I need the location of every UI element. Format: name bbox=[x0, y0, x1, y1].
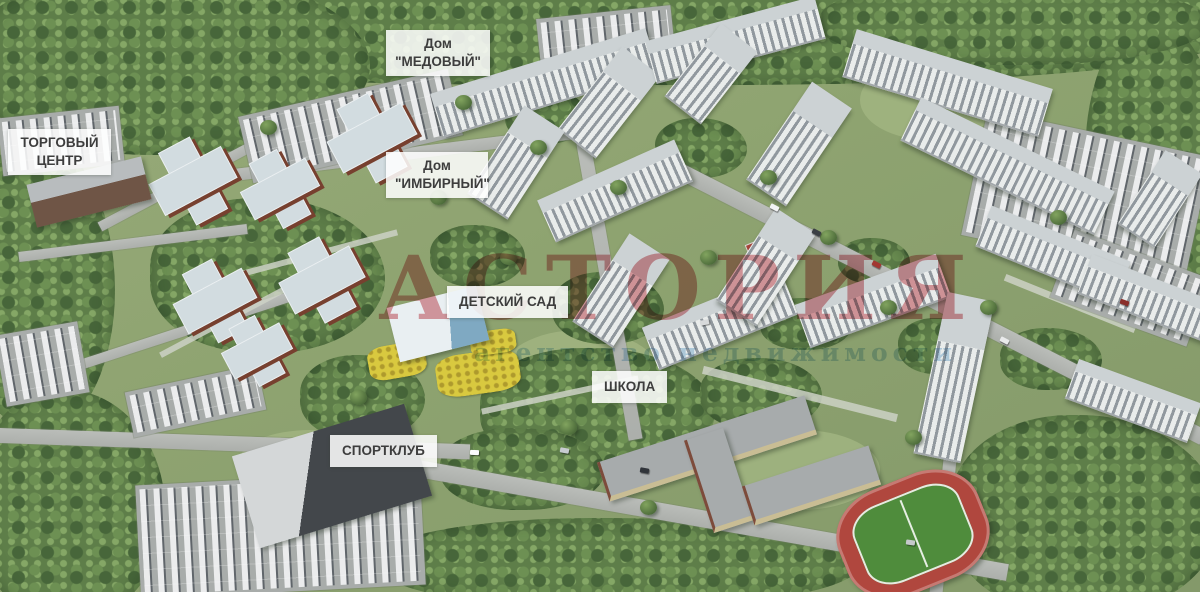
parking-lot bbox=[0, 321, 90, 406]
label-kindergarten[interactable]: ДЕТСКИЙ САД bbox=[447, 286, 568, 318]
tree bbox=[1050, 210, 1067, 225]
label-house-imbirny[interactable]: Дом "ИМБИРНЫЙ" bbox=[386, 152, 488, 198]
label-line: "МЕДОВЫЙ" bbox=[395, 53, 481, 71]
label-house-medovy[interactable]: Дом "МЕДОВЫЙ" bbox=[386, 30, 490, 76]
tree bbox=[530, 140, 547, 155]
tree bbox=[260, 120, 277, 135]
tree bbox=[980, 300, 997, 315]
tree bbox=[640, 500, 657, 515]
apartment-slab bbox=[746, 82, 852, 207]
label-line: ТОРГОВЫЙ bbox=[17, 134, 102, 152]
tree bbox=[455, 95, 472, 110]
masterplan-aerial-view: АСТОРИЯ агентство недвижимости ТОРГОВЫЙ … bbox=[0, 0, 1200, 592]
agency-watermark-subtitle: агентство недвижимости bbox=[474, 338, 944, 367]
tree bbox=[905, 430, 922, 445]
car bbox=[470, 450, 479, 455]
label-line: Дом bbox=[395, 35, 481, 53]
label-line: Дом bbox=[395, 157, 479, 175]
field-halfway-line bbox=[899, 500, 928, 568]
label-line: ЦЕНТР bbox=[17, 152, 102, 170]
football-field bbox=[845, 475, 981, 592]
label-line: "ИМБИРНЫЙ" bbox=[395, 175, 479, 193]
tree bbox=[760, 170, 777, 185]
label-shopping-center[interactable]: ТОРГОВЫЙ ЦЕНТР bbox=[8, 129, 111, 175]
tree bbox=[350, 390, 367, 405]
label-school[interactable]: ШКОЛА bbox=[592, 371, 667, 403]
car bbox=[906, 539, 916, 545]
label-sport-club[interactable]: СПОРТКЛУБ bbox=[330, 435, 437, 467]
tree bbox=[560, 420, 577, 435]
tree bbox=[610, 180, 627, 195]
